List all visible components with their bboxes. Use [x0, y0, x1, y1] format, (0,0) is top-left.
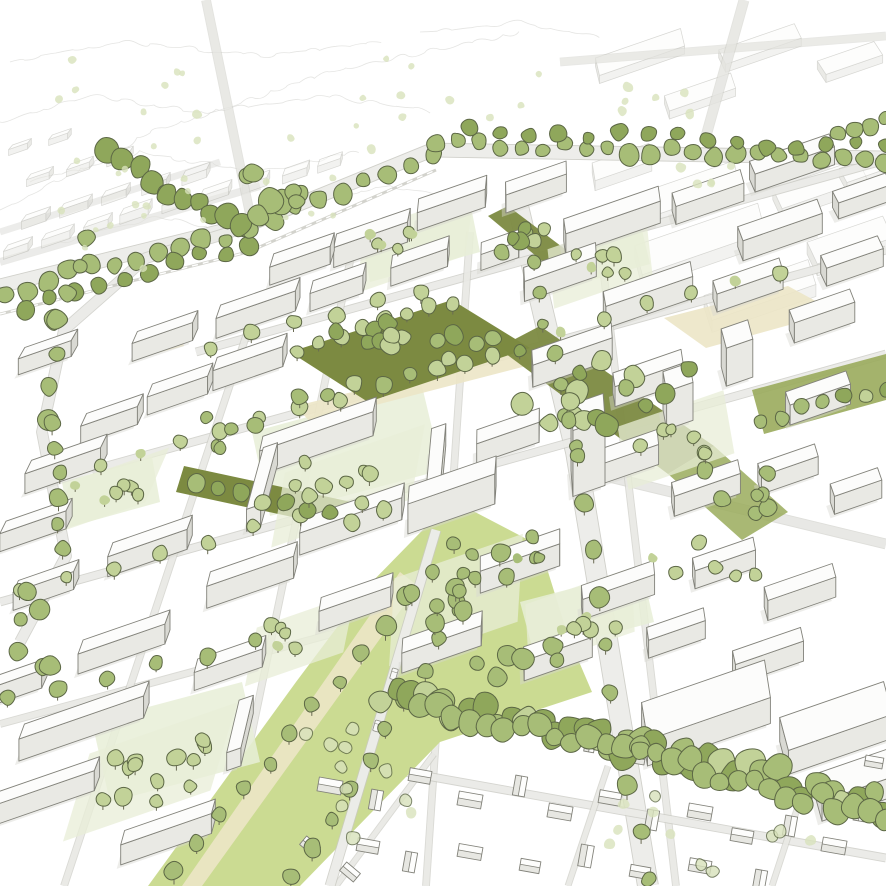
tree [320, 389, 334, 402]
tree [336, 800, 348, 812]
tree [562, 412, 576, 429]
tree [589, 587, 609, 608]
tree [286, 316, 301, 329]
tree [655, 383, 675, 404]
tree [606, 247, 621, 263]
tree [633, 439, 647, 453]
tree [619, 143, 639, 166]
tree [729, 570, 741, 582]
tree [583, 132, 594, 144]
tree [14, 613, 27, 626]
tree [754, 415, 766, 428]
tree [451, 133, 465, 147]
tree [376, 615, 397, 635]
tree [233, 483, 250, 502]
tree [750, 568, 762, 581]
tree [236, 781, 250, 795]
tree [773, 266, 788, 281]
tree [550, 125, 567, 142]
tree [664, 139, 680, 155]
tree [29, 599, 49, 620]
tree [453, 584, 467, 598]
tree [289, 480, 301, 492]
tree [846, 122, 863, 137]
tree [685, 286, 698, 300]
tree [299, 502, 316, 518]
tree [533, 286, 546, 299]
tree [430, 333, 445, 348]
tree [561, 393, 579, 411]
tree [254, 495, 271, 511]
tree [619, 380, 634, 397]
tree [446, 297, 459, 311]
tree [536, 144, 550, 156]
tree [107, 750, 124, 766]
tree [404, 158, 419, 174]
tree [751, 489, 764, 502]
tree [18, 582, 36, 600]
building [717, 320, 753, 390]
tree [485, 347, 500, 364]
tree [794, 398, 809, 414]
tree [447, 537, 461, 550]
tree [249, 633, 262, 647]
tree [239, 236, 258, 255]
tree [670, 127, 684, 139]
tree [289, 642, 302, 655]
tree [17, 300, 35, 320]
tree [404, 367, 417, 380]
tree [601, 141, 613, 155]
tree [642, 145, 661, 165]
tree [377, 501, 392, 519]
tree [326, 812, 338, 826]
tree [110, 486, 123, 499]
tree [346, 832, 360, 845]
tree [244, 324, 260, 339]
tree [599, 638, 612, 651]
tree [334, 183, 353, 205]
tree [534, 553, 545, 564]
tree [114, 787, 132, 806]
tree [44, 415, 61, 432]
tree [597, 312, 611, 327]
tree [111, 148, 133, 170]
tree [406, 807, 416, 818]
tree [494, 244, 509, 260]
tree [470, 656, 485, 670]
tree [118, 272, 133, 286]
tree [340, 783, 353, 794]
tree [192, 247, 206, 260]
tree [650, 791, 661, 802]
tree [356, 173, 370, 187]
tree [631, 742, 649, 759]
tree [73, 260, 87, 273]
tree [456, 355, 473, 371]
tree [774, 825, 786, 838]
tree [430, 599, 445, 613]
tree [400, 308, 413, 320]
tree [617, 775, 637, 795]
tree [187, 473, 205, 492]
tree [132, 488, 143, 501]
tree [362, 466, 378, 482]
tree [61, 571, 72, 582]
aerial-masterplan-illustration [0, 0, 886, 886]
tree [830, 126, 845, 140]
tree [863, 119, 879, 136]
masterplan-svg [0, 0, 886, 886]
tree [404, 585, 420, 603]
tree [586, 540, 602, 559]
tree [788, 141, 804, 155]
tree [469, 336, 484, 351]
tree [313, 336, 325, 349]
tree [211, 481, 225, 495]
tree [376, 377, 393, 394]
tree [859, 390, 872, 403]
tree [816, 394, 829, 408]
tree [511, 392, 533, 415]
tree [457, 567, 470, 579]
tree [355, 496, 369, 510]
tree [94, 459, 106, 472]
tree [282, 725, 297, 742]
tree [49, 347, 65, 361]
tree [304, 838, 320, 858]
tree [570, 449, 584, 463]
tree [515, 141, 528, 155]
tree [187, 753, 200, 766]
tree [442, 351, 457, 366]
tree [835, 388, 852, 402]
tree [43, 290, 56, 305]
tree [264, 757, 276, 771]
tree [486, 114, 494, 121]
tree [299, 728, 312, 741]
tree [666, 424, 676, 435]
tree [191, 229, 211, 248]
tree [633, 824, 650, 839]
tree [383, 327, 399, 343]
tree [528, 255, 541, 269]
tree [538, 223, 550, 236]
tree [279, 628, 290, 639]
tree [710, 773, 729, 790]
tree [574, 494, 593, 512]
tree [189, 834, 203, 851]
tree [526, 530, 539, 544]
tree [681, 362, 697, 377]
tree [219, 235, 232, 248]
tree [684, 145, 701, 160]
tree [283, 869, 300, 884]
tree [538, 319, 549, 329]
tree [697, 462, 712, 479]
tree [225, 423, 239, 435]
tree [426, 564, 440, 579]
tree [52, 518, 64, 531]
tree [247, 418, 264, 434]
tree [499, 568, 515, 585]
tree [53, 465, 66, 480]
tree [550, 653, 564, 667]
tree [400, 794, 412, 807]
tree [609, 621, 622, 634]
tree [422, 298, 436, 314]
